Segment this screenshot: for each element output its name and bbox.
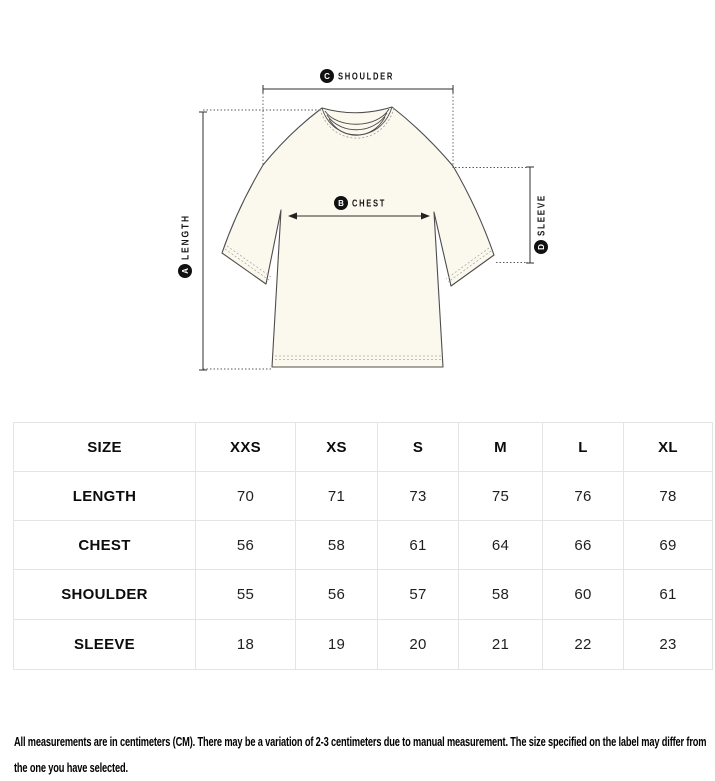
size-chart-table: SIZE XXS XS S M L XL LENGTH 70 71 73 75 … xyxy=(13,422,713,670)
length-label-text: LENGTH xyxy=(180,214,191,260)
row-label-sleeve: SLEEVE xyxy=(14,620,196,670)
column-header-l: L xyxy=(543,423,624,472)
sleeve-label: D SLEEVE xyxy=(534,194,548,254)
shoulder-badge-letter: C xyxy=(324,72,330,81)
size-guide-page: C SHOULDER B CHEST A LENGTH D SLEEVE xyxy=(0,0,715,781)
sleeve-label-text: SLEEVE xyxy=(536,194,547,236)
table-cell: 70 xyxy=(196,472,296,521)
column-header-m: M xyxy=(459,423,543,472)
table-cell: 66 xyxy=(543,521,624,570)
table-cell: 76 xyxy=(543,472,624,521)
shoulder-label: C SHOULDER xyxy=(320,69,394,83)
table-cell: 61 xyxy=(624,570,713,620)
column-header-xl: XL xyxy=(624,423,713,472)
table-row-chest: CHEST 56 58 61 64 66 69 xyxy=(14,521,713,570)
chest-badge-letter: B xyxy=(338,199,344,208)
table-cell: 22 xyxy=(543,620,624,670)
table-cell: 73 xyxy=(378,472,459,521)
table-cell: 19 xyxy=(296,620,378,670)
sleeve-badge-letter: D xyxy=(537,244,546,250)
column-header-xs: XS xyxy=(296,423,378,472)
table-row-shoulder: SHOULDER 55 56 57 58 60 61 xyxy=(14,570,713,620)
length-badge-letter: A xyxy=(181,268,190,274)
chest-label-text: CHEST xyxy=(352,199,386,210)
table-cell: 64 xyxy=(459,521,543,570)
table-cell: 21 xyxy=(459,620,543,670)
table-cell: 57 xyxy=(378,570,459,620)
table-cell: 56 xyxy=(296,570,378,620)
table-cell: 69 xyxy=(624,521,713,570)
row-label-shoulder: SHOULDER xyxy=(14,570,196,620)
row-label-length: LENGTH xyxy=(14,472,196,521)
table-cell: 78 xyxy=(624,472,713,521)
tshirt-measurement-diagram: C SHOULDER B CHEST A LENGTH D SLEEVE xyxy=(0,0,715,410)
table-cell: 55 xyxy=(196,570,296,620)
table-cell: 18 xyxy=(196,620,296,670)
column-header-s: S xyxy=(378,423,459,472)
table-cell: 58 xyxy=(459,570,543,620)
shoulder-label-text: SHOULDER xyxy=(338,72,394,83)
table-cell: 20 xyxy=(378,620,459,670)
table-cell: 71 xyxy=(296,472,378,521)
table-cell: 60 xyxy=(543,570,624,620)
column-header-xxs: XXS xyxy=(196,423,296,472)
length-label: A LENGTH xyxy=(178,214,192,278)
table-row-length: LENGTH 70 71 73 75 76 78 xyxy=(14,472,713,521)
table-cell: 56 xyxy=(196,521,296,570)
table-header-row: SIZE XXS XS S M L XL xyxy=(14,423,713,472)
row-label-chest: CHEST xyxy=(14,521,196,570)
table-row-sleeve: SLEEVE 18 19 20 21 22 23 xyxy=(14,620,713,670)
measurement-disclaimer: All measurements are in centimeters (CM)… xyxy=(14,729,710,781)
table-cell: 75 xyxy=(459,472,543,521)
column-header-size: SIZE xyxy=(14,423,196,472)
table-cell: 23 xyxy=(624,620,713,670)
chest-label: B CHEST xyxy=(334,196,386,210)
table-cell: 58 xyxy=(296,521,378,570)
table-cell: 61 xyxy=(378,521,459,570)
